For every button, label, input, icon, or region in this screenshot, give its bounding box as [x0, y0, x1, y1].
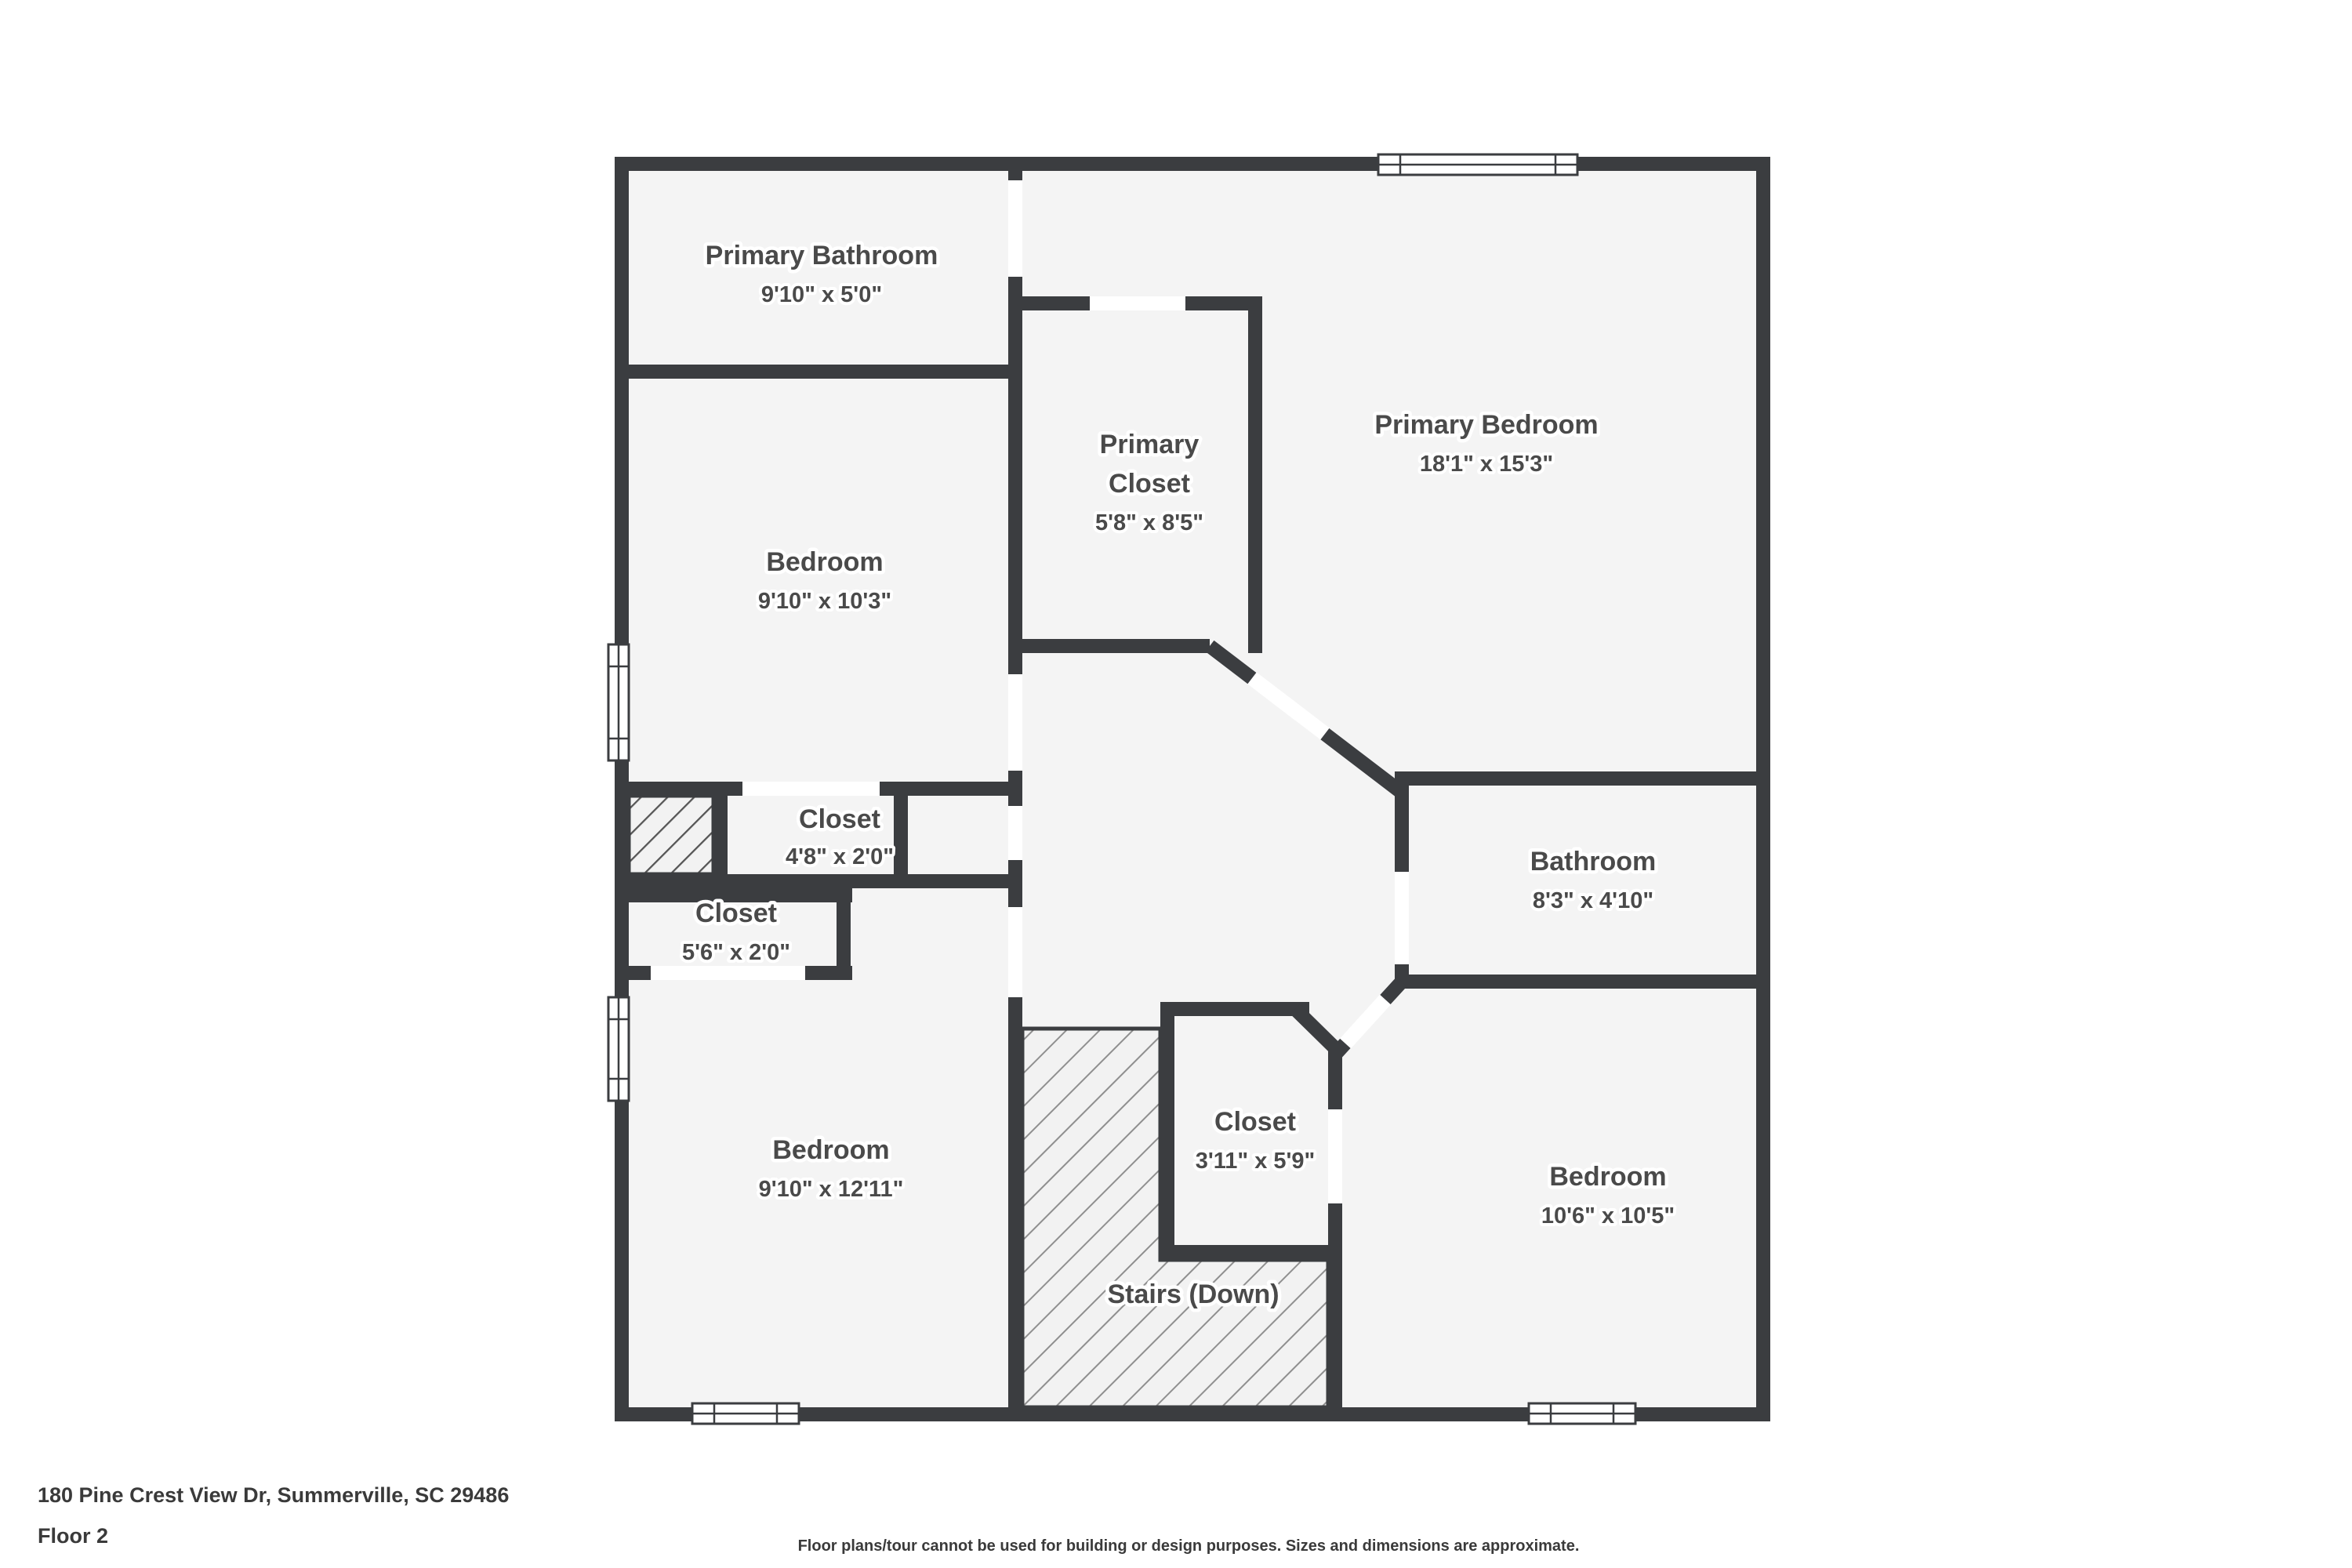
window-icon: [692, 1403, 799, 1424]
door-opening: [1008, 674, 1022, 771]
room-label-bathroom: Bathroom: [1530, 847, 1657, 877]
room-dims-primary-closet: 5'8" x 8'5": [1095, 510, 1203, 535]
room-dims-primary-bathroom: 9'10" x 5'0": [761, 282, 882, 307]
door-opening: [1328, 1109, 1342, 1203]
room-dims-bedroom-bottom-right: 10'6" x 10'5": [1541, 1203, 1675, 1229]
room-dims-closet-small: 4'8" x 2'0": [786, 844, 894, 869]
room-label-primary-closet-line2: Closet: [1109, 469, 1190, 499]
door-opening: [1008, 180, 1022, 277]
room-dims-bedroom-top: 9'10" x 10'3": [758, 589, 891, 614]
door-opening: [1395, 872, 1409, 964]
footer-disclaimer: Floor plans/tour cannot be used for buil…: [798, 1537, 1580, 1555]
chase-hatch: [629, 796, 713, 874]
window-icon: [608, 644, 629, 760]
room-label-bedroom-bottom-right: Bedroom: [1549, 1162, 1666, 1192]
door-opening: [1090, 296, 1185, 310]
window-icon: [608, 997, 629, 1101]
room-label-closet-small: Closet: [799, 804, 880, 834]
footer-address: 180 Pine Crest View Dr, Summerville, SC …: [38, 1483, 509, 1507]
room-label-closet-bottom: Closet: [1214, 1107, 1296, 1137]
room-label-primary-bedroom: Primary Bedroom: [1374, 410, 1598, 440]
room-label-bedroom-top: Bedroom: [766, 547, 883, 577]
room-label-closet-mid: Closet: [695, 898, 777, 928]
door-opening: [1008, 907, 1022, 997]
door-opening: [651, 966, 805, 980]
window-icon: [1378, 154, 1577, 175]
room-dims-primary-bedroom: 18'1" x 15'3": [1420, 452, 1553, 477]
window-icon: [1529, 1403, 1635, 1424]
room-dims-closet-bottom: 3'11" x 5'9": [1196, 1149, 1316, 1174]
room-label-bedroom-bottom-left: Bedroom: [772, 1135, 889, 1165]
room-label-primary-bathroom: Primary Bathroom: [706, 241, 938, 270]
footer-floor-label: Floor 2: [38, 1524, 108, 1548]
room-dims-bathroom: 8'3" x 4'10": [1533, 888, 1653, 913]
room-dims-bedroom-bottom-left: 9'10" x 12'11": [759, 1177, 904, 1202]
room-label-stairs: Stairs (Down): [1107, 1279, 1279, 1309]
floor-plan: Primary Bathroom 9'10" x 5'0" Primary Cl…: [0, 0, 2352, 1568]
door-opening: [1008, 806, 1022, 860]
room-label-primary-closet-line1: Primary: [1100, 430, 1200, 459]
room-dims-closet-mid: 5'6" x 2'0": [682, 940, 790, 965]
door-opening: [742, 782, 880, 796]
footer: 180 Pine Crest View Dr, Summerville, SC …: [38, 1483, 1579, 1555]
